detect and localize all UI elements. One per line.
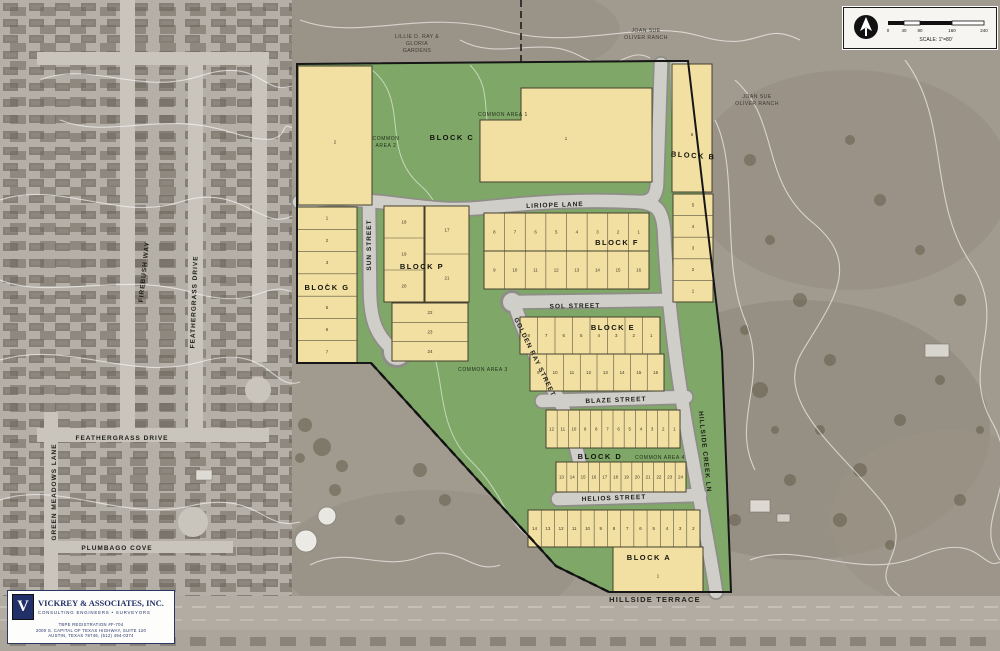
lot-number: 18 (402, 220, 407, 225)
plan-canvas: 1 12345671819201721222324876543219101112… (0, 0, 1000, 651)
lot-number: 12 (554, 268, 559, 273)
lot-number: 17 (445, 228, 450, 233)
firm-title-block: V VICKREY & ASSOCIATES, INC. CONSULTING … (7, 590, 175, 644)
lot-number: 13 (603, 370, 608, 375)
lot-strip-bottom-row: 141312111098765432 (528, 510, 700, 547)
lot-strip-block-c-lot2: 2 (298, 66, 372, 205)
street-label-hillside-terrace: HILLSIDE TERRACE (609, 595, 701, 604)
lot-number: 16 (653, 370, 658, 375)
water-tank (295, 530, 317, 552)
common-area-2-label: COMMON (373, 136, 400, 142)
lot-number: 20 (635, 475, 640, 480)
common-area-3-label: COMMON AREA 3 (458, 367, 508, 373)
lot-number: 10 (553, 370, 558, 375)
block-e-label: BLOCK E (591, 323, 635, 332)
firm-name: VICKREY & ASSOCIATES, INC. (38, 599, 164, 609)
lot-strip-block-p-col2: 1721 (425, 206, 469, 302)
lot-number: 24 (678, 475, 683, 480)
lot-number: 11 (572, 526, 577, 531)
lot-number: 22 (428, 310, 433, 315)
lot-number: 17 (602, 475, 607, 480)
block-a-label: BLOCK A (627, 553, 671, 562)
lot-number: 16 (591, 475, 596, 480)
water-tank (318, 507, 336, 525)
bar-scale: 0 40 80 160 240 SCALE: 1"=80' (887, 21, 989, 43)
lot-number: 10 (571, 427, 576, 432)
lot-number: 20 (402, 284, 407, 289)
lot-number: 24 (428, 349, 433, 354)
lot-number: 12 (586, 370, 591, 375)
lot-number: 22 (656, 475, 661, 480)
lot-strip-block-f-row2: 910111213141516 (484, 251, 649, 289)
lot-strip-block-b-col: 54321 (673, 194, 713, 302)
junction (503, 293, 521, 311)
site-plan-map: 1 12345671819201721222324876543219101112… (0, 0, 1000, 651)
block-f-label: BLOCK F (595, 238, 639, 247)
lot-number: 13 (545, 526, 550, 531)
sol-street (514, 300, 664, 302)
lot-block-outline (672, 64, 712, 192)
lot-number: 11 (533, 268, 538, 273)
lot-number: 14 (595, 268, 600, 273)
lot-number: 23 (667, 475, 672, 480)
adjacent-nw-label: LILLIE D. RAY & (395, 34, 439, 40)
block-g-label: BLOCK G (304, 283, 349, 292)
lot-number: 10 (585, 526, 590, 531)
lot-number: 18 (613, 475, 618, 480)
lot-number: 21 (646, 475, 651, 480)
scale-tick: 240 (980, 28, 988, 33)
lot-number: 14 (570, 475, 575, 480)
street-label-feathergrass-h: FEATHERGRASS DRIVE (76, 435, 169, 442)
common-area-4-label: COMMON AREA 4 (635, 455, 685, 461)
block-d-label: BLOCK D (578, 452, 623, 461)
scale-box: 0 40 80 160 240 SCALE: 1"=80' (843, 7, 997, 49)
scale-tick: 80 (917, 28, 923, 33)
adjacent-nw-label: GARDENS (403, 48, 432, 54)
lot-number: 10 (512, 268, 517, 273)
scale-tick: 160 (948, 28, 956, 33)
lot-number: 15 (636, 370, 641, 375)
lot-strip-block-p-col1: 181920 (384, 206, 424, 302)
street-label-sol: SOL STREET (550, 303, 601, 311)
lot-block-outline (298, 66, 372, 205)
lot-number: 19 (624, 475, 629, 480)
common-area-2-label: AREA 2 (375, 143, 396, 149)
adjacent-ne-label: OLIVER RANCH (624, 35, 668, 41)
lot-number: 14 (532, 526, 537, 531)
lot-number: 11 (560, 427, 565, 432)
lot-number: 12 (549, 427, 554, 432)
firm-city-phone: AUSTIN, TEXAS 78746, (512) 494-0374 (12, 633, 170, 639)
lot-strip-block-d-row1: 121110987654321 (546, 410, 680, 448)
scale-tick: 40 (901, 28, 907, 33)
adjacent-nw-label: GLORIA (406, 41, 428, 47)
lot-strip-block-p-col3: 222324 (392, 303, 468, 361)
street-label-green-meadows: GREEN MEADOWS LANE (51, 443, 58, 540)
adjacent-ne-label: JOAN SUE (631, 28, 660, 34)
adjacent-e-label: OLIVER RANCH (735, 101, 779, 107)
street-label-plumbago: PLUMBAGO COVE (81, 545, 152, 552)
block-p-label: BLOCK P (400, 262, 444, 271)
adjacent-e-label: JOAN SUE (742, 94, 771, 100)
lot-number: 13 (559, 475, 564, 480)
firm-logo: V (12, 594, 34, 620)
lot-number: 19 (402, 252, 407, 257)
scale-text: SCALE: 1"=80' (919, 37, 952, 43)
common-area-1-label: COMMON AREA 1 (478, 112, 528, 118)
scale-graphic: 0 40 80 160 240 SCALE: 1"=80' (844, 9, 994, 47)
lot-number: 23 (428, 330, 433, 335)
north-arrow-stem (865, 28, 867, 36)
lot-number: 11 (570, 370, 575, 375)
lot-number: 13 (574, 268, 579, 273)
lot-strip-block-b-lot6: 6 (672, 64, 712, 192)
lot-number: 15 (581, 475, 586, 480)
street-label-sun: SUN STREET (366, 219, 373, 270)
lot-number: 12 (559, 526, 564, 531)
lot-number: 16 (636, 268, 641, 273)
lot-number: 14 (620, 370, 625, 375)
block-c-label: BLOCK C (430, 133, 475, 142)
scale-tick: 0 (887, 28, 890, 33)
lot-number: 15 (616, 268, 621, 273)
firm-tagline: CONSULTING ENGINEERS • SURVEYORS (38, 610, 164, 615)
lot-number: 21 (445, 276, 450, 281)
lot-strip-block-d-row2: 131415161718192021222324 (556, 462, 686, 492)
